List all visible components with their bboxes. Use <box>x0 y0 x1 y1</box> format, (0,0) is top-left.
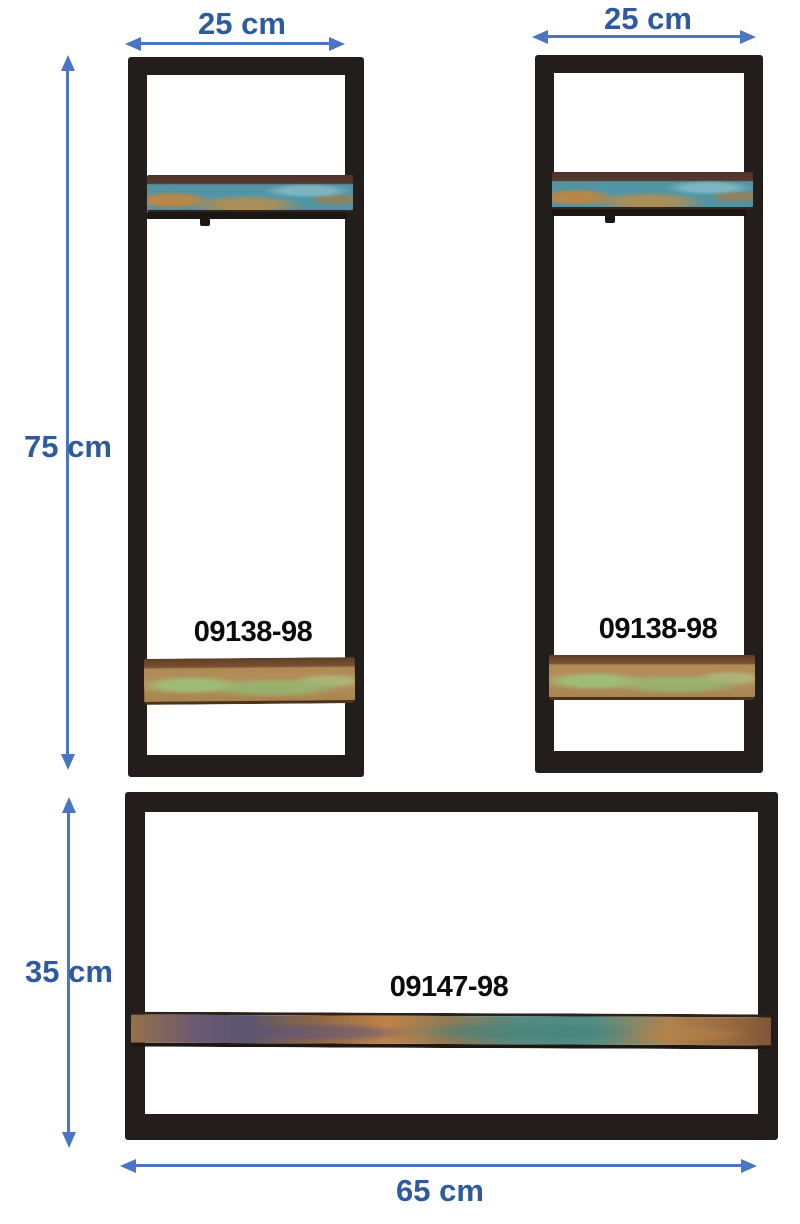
shelf-support-bar-right <box>552 209 746 216</box>
wood-shelf-top-right <box>552 172 753 210</box>
arrow-line <box>133 1164 744 1167</box>
product-dimension-diagram: 25 cm 25 cm 75 cm 35 cm 65 cm 09138-98 0… <box>0 0 800 1224</box>
dimension-label-width-right-unit: 25 cm <box>604 1 692 37</box>
wood-shelf-top-left <box>147 175 353 213</box>
product-code-tall-left: 09138-98 <box>194 616 313 649</box>
product-code-wide: 09147-98 <box>390 971 509 1004</box>
wood-plank-wide-unit <box>131 1012 771 1050</box>
shelf-frame-wide <box>125 792 778 1140</box>
shelf-bracket-left <box>200 219 210 226</box>
shelf-support-bar-left <box>147 212 347 219</box>
arrow-line <box>66 68 69 757</box>
wood-shelf-bottom-right <box>549 655 755 700</box>
dimension-label-width-wide-unit: 65 cm <box>396 1173 484 1209</box>
shelf-bracket-right <box>605 216 615 223</box>
wood-shelf-bottom-left <box>144 657 355 705</box>
dimension-label-width-left-unit: 25 cm <box>198 6 286 42</box>
arrowhead-right-icon <box>329 37 345 51</box>
dimension-label-height-tall-units: 75 cm <box>24 429 112 465</box>
height-arrow-tall-units <box>61 55 75 770</box>
arrow-line <box>138 42 332 45</box>
arrowhead-right-icon <box>740 30 756 44</box>
product-code-tall-right: 09138-98 <box>599 613 718 646</box>
dimension-label-height-wide-unit: 35 cm <box>25 954 113 990</box>
arrowhead-right-icon <box>741 1159 757 1173</box>
width-arrow-wide-unit <box>120 1159 757 1173</box>
arrowhead-down-icon <box>61 754 75 770</box>
arrowhead-down-icon <box>62 1132 76 1148</box>
